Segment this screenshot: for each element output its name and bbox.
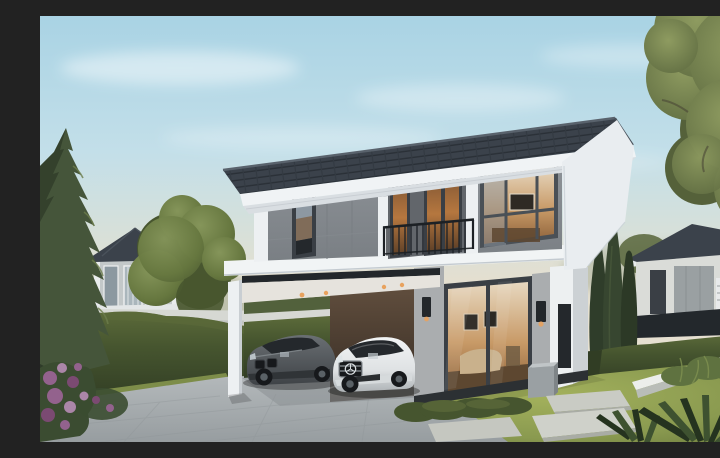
slot-window bbox=[558, 304, 571, 368]
wall-sconce-left bbox=[422, 297, 431, 317]
sliding-doors bbox=[444, 276, 532, 398]
interior-furniture bbox=[492, 228, 540, 242]
ground-floor bbox=[414, 265, 588, 406]
wall-sconce-right bbox=[536, 301, 546, 322]
bmw-grille bbox=[255, 360, 265, 369]
planter-box bbox=[528, 362, 558, 398]
architectural-render: Modern two-story house with dark gray hi… bbox=[40, 16, 720, 442]
render-canvas bbox=[40, 16, 720, 442]
left-neighbor-window bbox=[104, 266, 118, 308]
tv-art-panel bbox=[510, 194, 534, 210]
right-neighbor-balcony bbox=[716, 278, 720, 310]
right-neighbor-window bbox=[650, 270, 666, 314]
